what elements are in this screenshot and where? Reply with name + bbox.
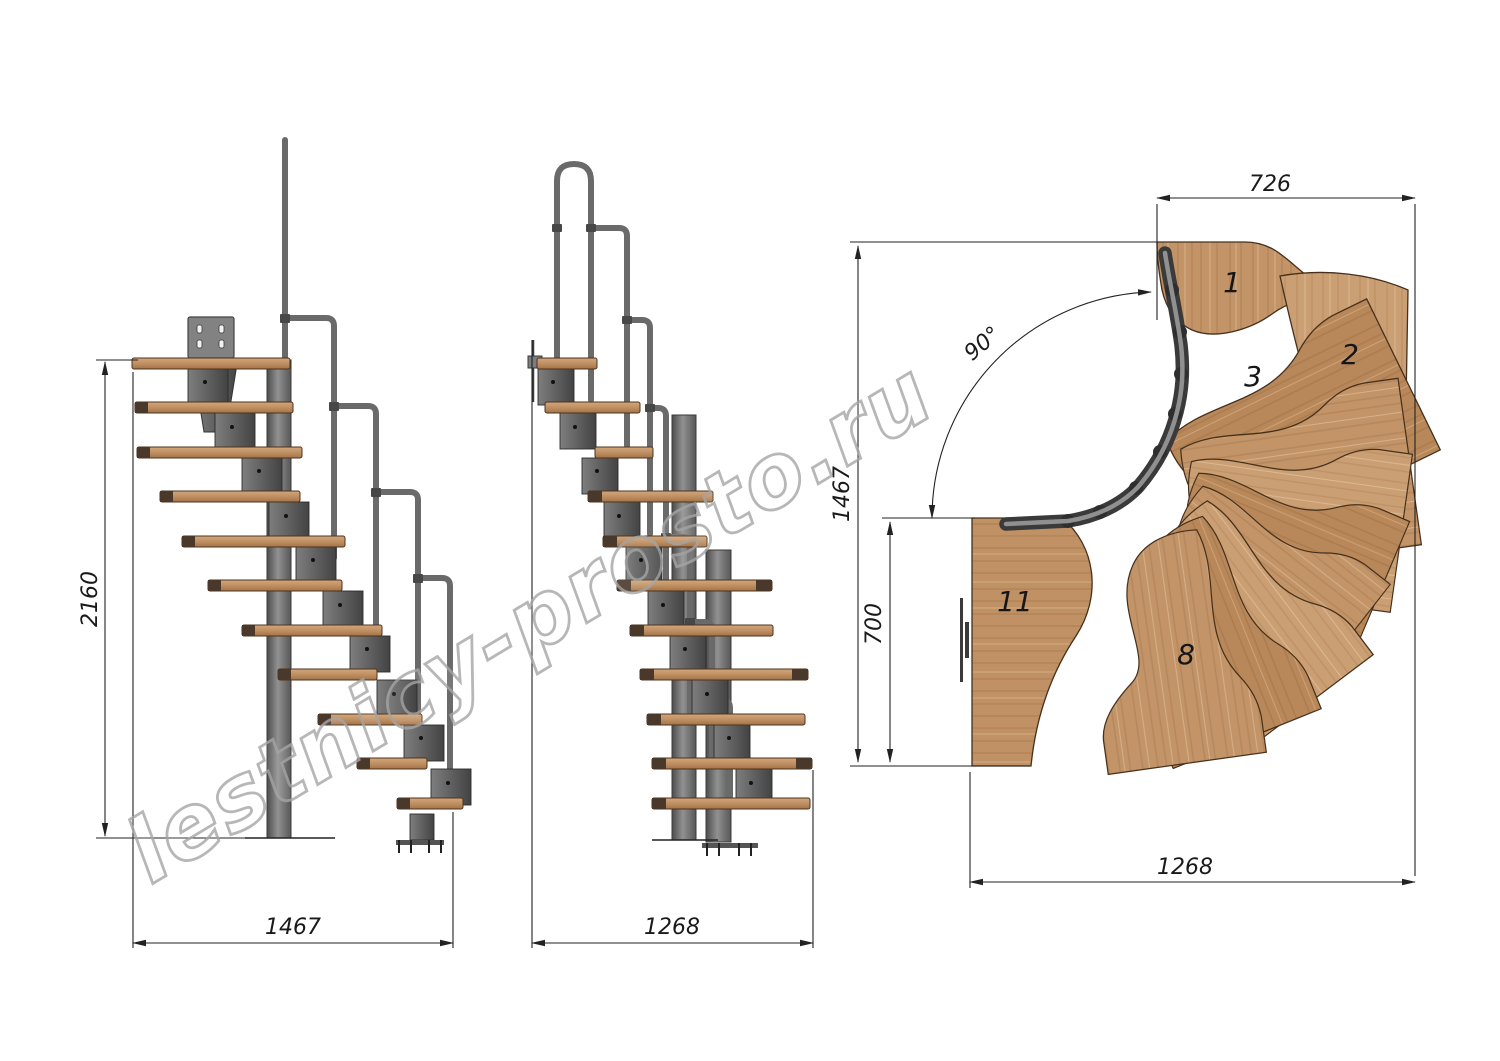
dim-side-width: 1268 bbox=[644, 915, 700, 940]
dim-turn-angle-arc bbox=[932, 292, 1151, 518]
tread bbox=[545, 402, 640, 413]
tread bbox=[652, 758, 812, 769]
wall-bracket bbox=[962, 598, 968, 682]
tread bbox=[647, 714, 805, 725]
plan-handrail bbox=[1006, 253, 1188, 528]
tread bbox=[137, 447, 302, 458]
tread-number-label: 1 bbox=[1223, 266, 1241, 299]
mounting-plate bbox=[188, 317, 234, 358]
tread bbox=[208, 580, 342, 591]
tread bbox=[242, 625, 382, 636]
tread-number-label: 2 bbox=[1341, 338, 1359, 371]
tread bbox=[595, 447, 653, 458]
tread bbox=[630, 625, 773, 636]
tread bbox=[652, 798, 810, 809]
tread bbox=[640, 669, 808, 680]
tread bbox=[135, 402, 293, 413]
tread-number-label: 8 bbox=[1177, 638, 1195, 671]
tread bbox=[160, 491, 300, 502]
landing-tread-11 bbox=[972, 518, 1092, 766]
tread bbox=[537, 358, 597, 369]
base-plate bbox=[702, 843, 758, 856]
staircase-drawing: 2160 1467 1268 726 1467 700 1268 90° 1 2… bbox=[0, 0, 1500, 1061]
tread bbox=[182, 536, 345, 547]
tread-number-label: 11 bbox=[997, 585, 1033, 618]
dim-front-height: 2160 bbox=[78, 571, 103, 627]
dim-plan-entry-width: 726 bbox=[1249, 172, 1291, 197]
base-plate bbox=[396, 840, 444, 853]
dim-front-width: 1467 bbox=[265, 915, 321, 940]
dim-turn-angle: 90° bbox=[960, 322, 1006, 366]
staircase-drawing-page: 2160 1467 1268 726 1467 700 1268 90° 1 2… bbox=[0, 0, 1500, 1061]
plan-view bbox=[962, 242, 1441, 774]
tread-number-label: 3 bbox=[1244, 360, 1262, 393]
tread bbox=[132, 358, 290, 369]
dim-plan-width: 1268 bbox=[1157, 855, 1213, 880]
dim-plan-landing-depth: 700 bbox=[862, 603, 887, 645]
